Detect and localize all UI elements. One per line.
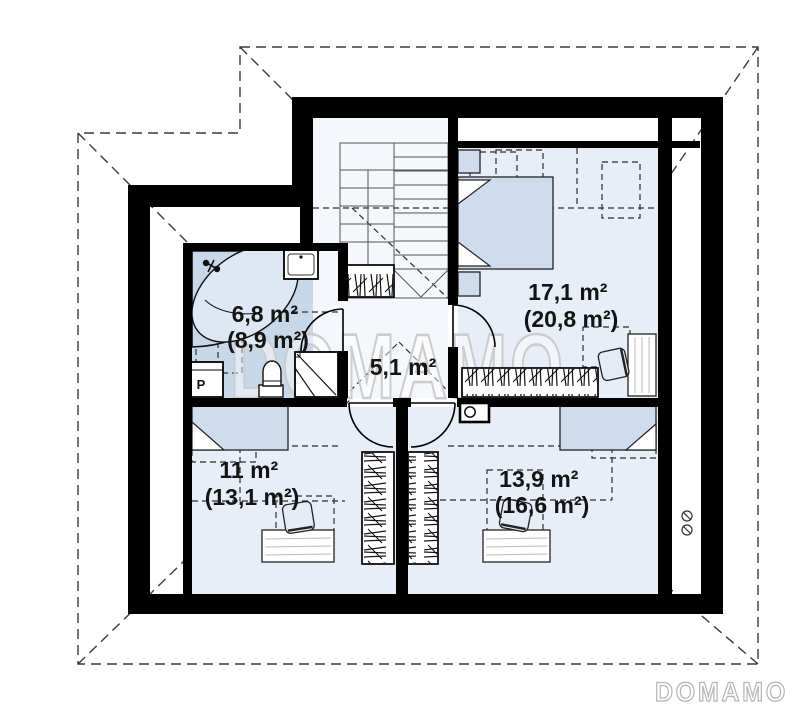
wardrobe <box>408 452 438 564</box>
single-bed <box>560 406 656 450</box>
nightstand <box>458 150 480 173</box>
floor-plan-drawing: DOMAMO P <box>0 0 800 711</box>
nightstand <box>458 272 480 296</box>
chimney-box <box>460 403 489 422</box>
wardrobe <box>362 452 394 564</box>
single-bed <box>192 406 288 450</box>
bathroom-area-label: 6,8 m² (8,9 m²) <box>227 301 309 353</box>
understairs-wardrobe <box>343 265 394 297</box>
room-bottom-right-area-label: 13,9 m² (16,6 m²) <box>495 466 590 518</box>
bedroom-area-label: 17,1 m² (20,8 m²) <box>524 279 619 332</box>
desk <box>628 334 656 396</box>
washbasin <box>284 249 318 279</box>
corner-shower <box>295 352 338 397</box>
brand-logo: DOMAMO <box>655 677 788 707</box>
wardrobe <box>462 368 598 397</box>
desk <box>262 530 334 562</box>
chair <box>597 347 629 381</box>
washing-machine: P <box>190 362 223 397</box>
double-bed <box>458 177 553 269</box>
desk <box>483 530 550 562</box>
floor-plan-canvas: DOMAMO P <box>0 0 800 711</box>
hall-area-label: 5,1 m² <box>370 354 437 380</box>
washing-machine-label: P <box>197 377 206 392</box>
